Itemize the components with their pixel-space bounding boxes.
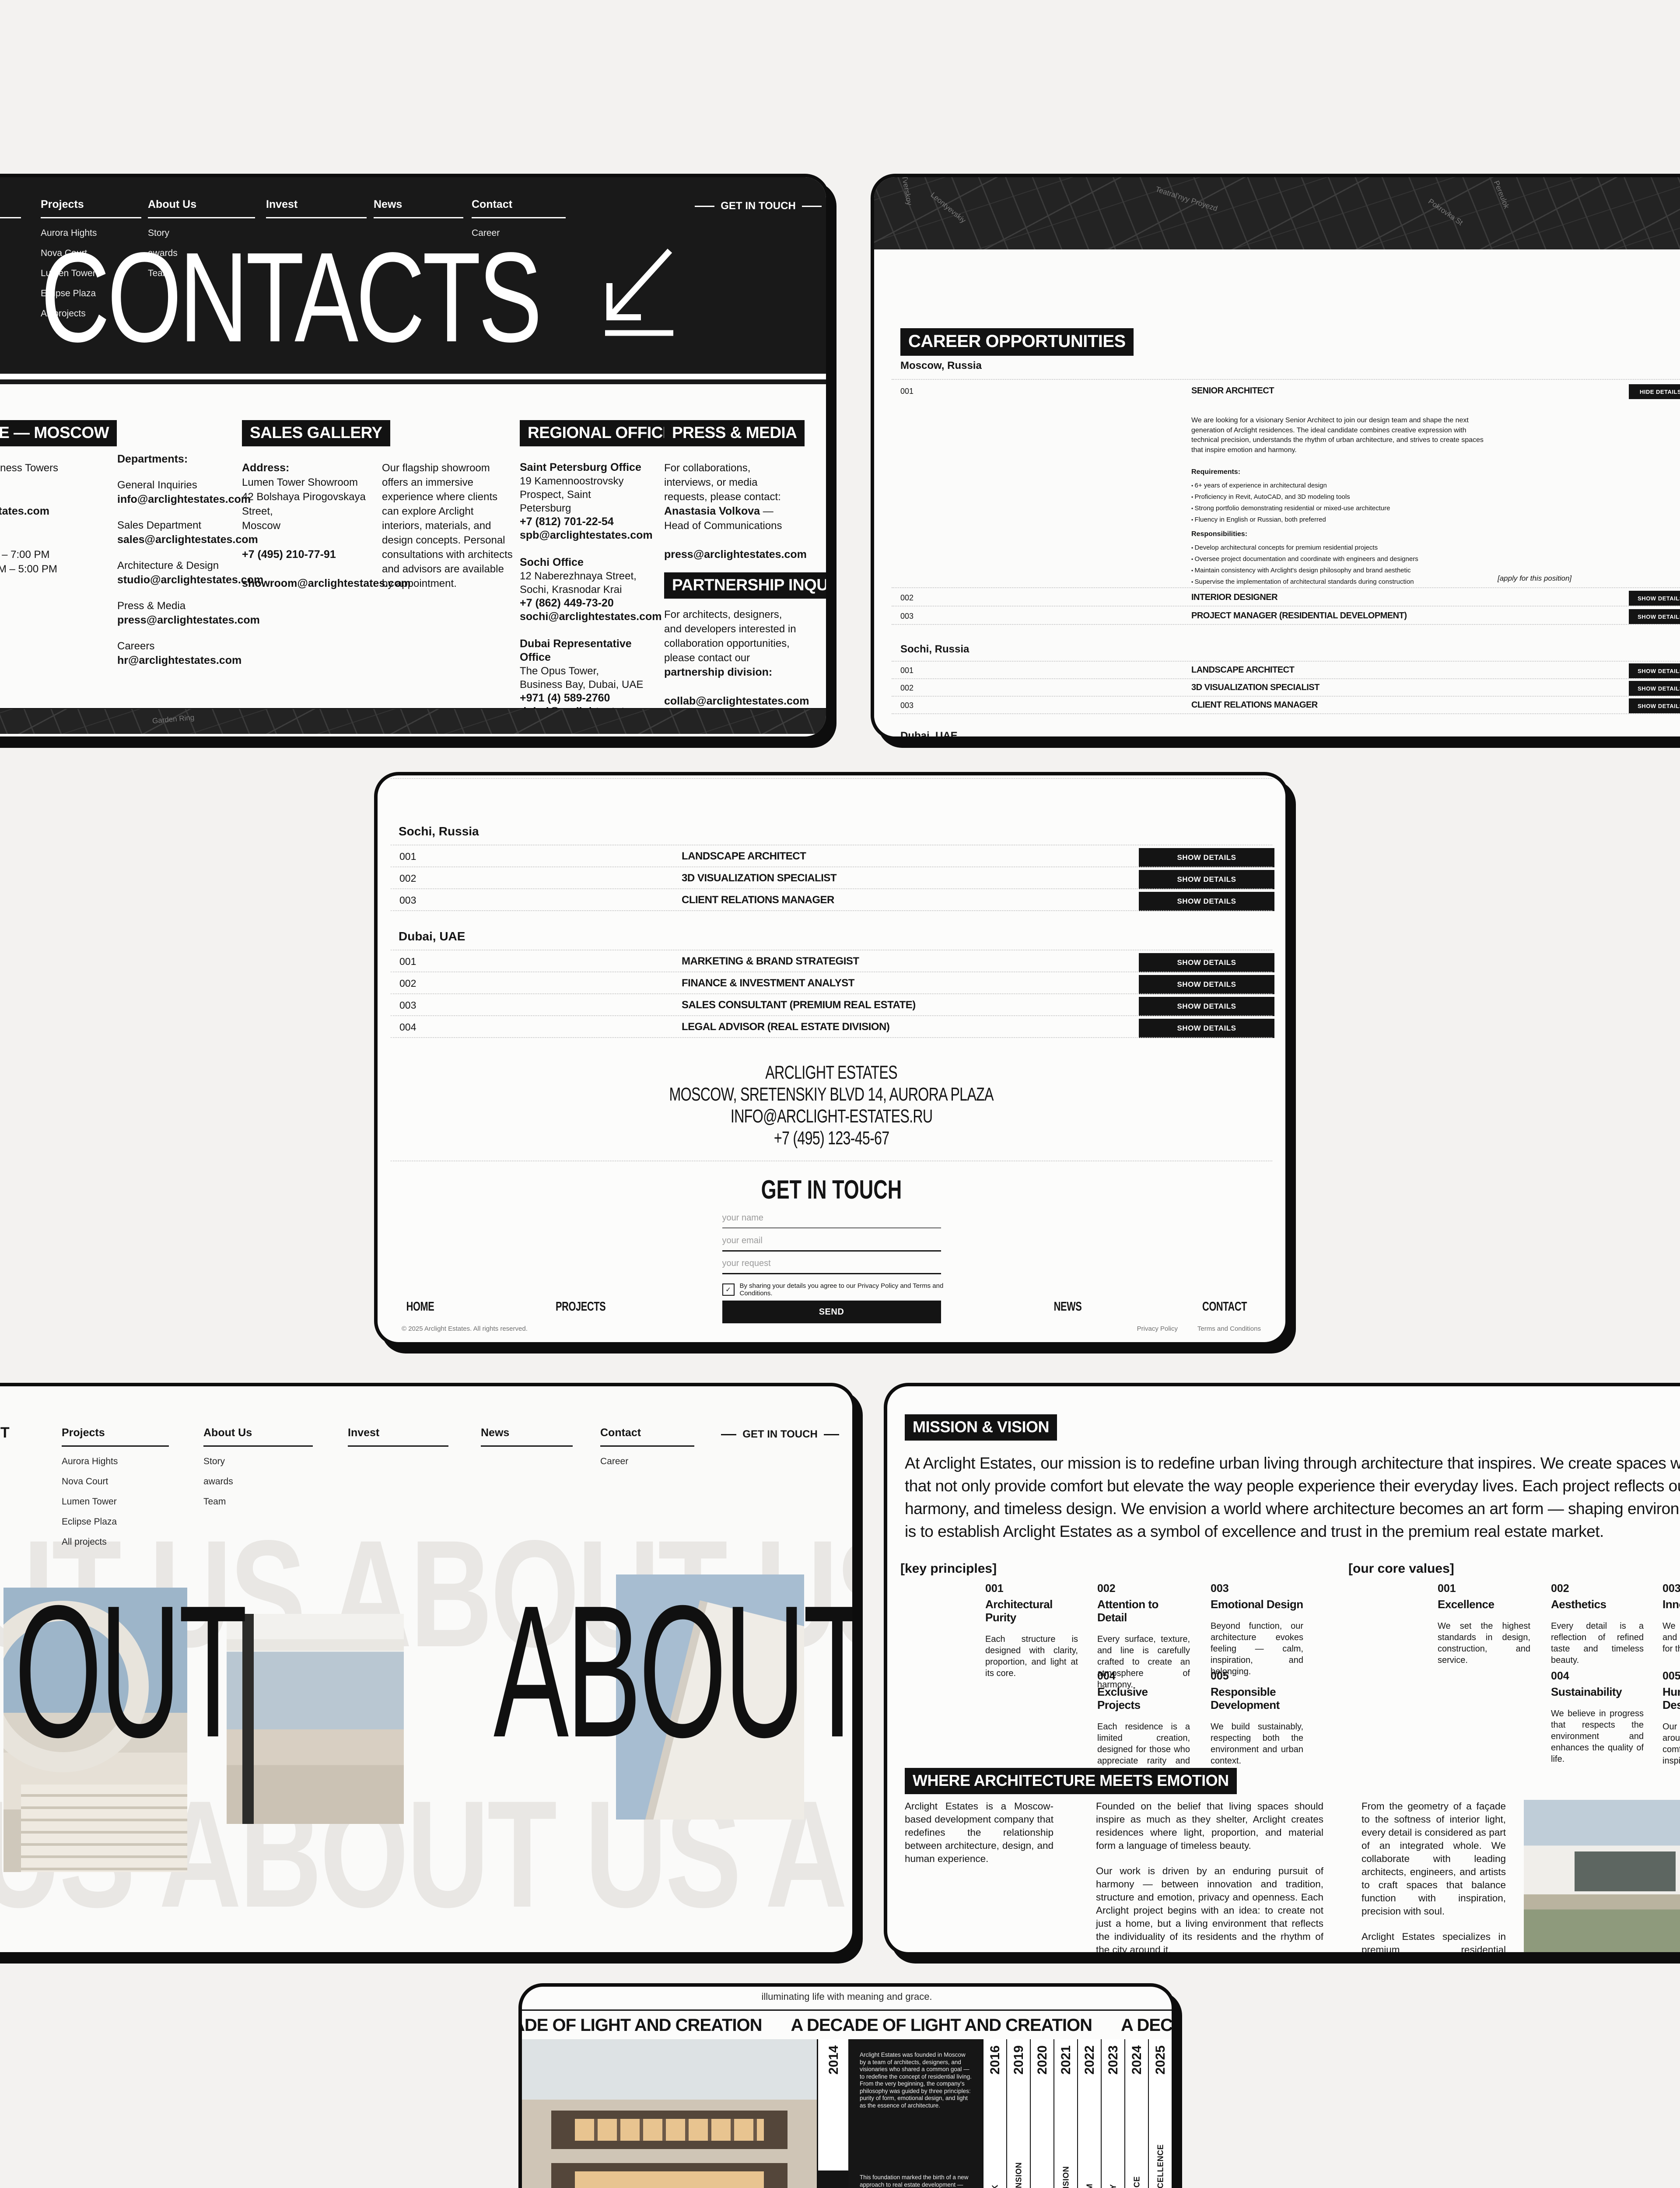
nav-item-projects[interactable]: Projects Aurora Hights Nova Court Lumen … [62, 1427, 169, 1547]
job-row: 003 PROJECT MANAGER (RESIDENTIAL DEVELOP… [874, 611, 1680, 624]
principle-item: 005Responsible Development We build sust… [1211, 1670, 1303, 1767]
arrow-down-left-icon [596, 247, 679, 339]
frame-about: ABOUT US ABOUT US ABOUT US ABOUT US ABOU… [0, 1383, 856, 1956]
show-details-button[interactable]: SHOW DETAILS [1629, 609, 1680, 624]
show-details-button[interactable]: SHOW DETAILS [1139, 870, 1274, 889]
value-item: 004Sustainability We believe in progress… [1551, 1670, 1644, 1765]
email-link[interactable]: hr@arclightestates.com [117, 654, 241, 666]
footer-link[interactable]: INVEST [901, 1300, 934, 1314]
frame-contact-form: Sochi, Russia 001 LANDSCAPE ARCHITECT SH… [374, 772, 1289, 1346]
job-row: 002 INTERIOR DESIGNER SHOW DETAILS [874, 593, 1680, 606]
email-input[interactable] [722, 1236, 941, 1250]
timeline-year-column: 2019 GROWTH & EXPANSION ↗ [1006, 2039, 1031, 2188]
apply-link[interactable]: [apply for this position] [1498, 574, 1571, 583]
nav-item-invest[interactable]: Invest [266, 198, 367, 218]
decade-tagline: illuminating life with meaning and grace… [522, 1991, 1172, 2002]
email-field[interactable] [722, 1236, 941, 1252]
show-details-button[interactable]: SHOW DETAILS [1139, 1019, 1274, 1038]
timeline-year-column: 2023 DESIGN SYNERGY ↗ [1101, 2039, 1125, 2188]
email-link[interactable]: press@arclightestates.com [664, 548, 807, 561]
show-details-button[interactable]: SHOW DETAILS [1139, 997, 1274, 1016]
nav-subitem[interactable]: Team [203, 1497, 313, 1507]
timeline-foundation-text: Arclight Estates was founded in Moscow b… [848, 2039, 983, 2188]
city-label: Sochi, Russia [900, 643, 969, 656]
email-link[interactable]: spb@arclightestates.com [520, 529, 653, 541]
job-row: 001 LANDSCAPE ARCHITECT SHOW DETAILS [874, 665, 1680, 678]
job-row: 001 SENIOR ARCHITECT HIDE DETAILS [874, 386, 1680, 399]
job-row: 002 3D VISUALIZATION SPECIALIST SHOW DET… [378, 871, 1285, 888]
footer-link[interactable]: PROJECTS [556, 1300, 605, 1314]
phone-link[interactable]: +7 (495) 210-77-91 [242, 548, 336, 561]
frame-careers: Leontyevskiy Tverskoy Teatral'nyy Proyez… [871, 174, 1680, 740]
frame-contacts: . Projects Aurora Hights Nova Court Lume… [0, 174, 829, 740]
page-title-chip: CAREER OPPORTUNITIES [900, 328, 1134, 356]
email-link[interactable]: sales@arclightestates.com [117, 533, 258, 546]
job-row: 001 LANDSCAPE ARCHITECT SHOW DETAILS [378, 849, 1285, 866]
nav-item-contact[interactable]: Contact Career [600, 1427, 694, 1467]
emotion-photo [1524, 1800, 1680, 1952]
value-item: 002Aesthetics Every detail is a reflecti… [1551, 1582, 1644, 1666]
timeline-foundation-strip: 2014 FOUNDATION ↙ [817, 2039, 850, 2188]
frame-mission: MISSION & VISION At Arclight Estates, ou… [884, 1383, 1680, 1956]
emotion-col: Founded on the belief that living spaces… [1096, 1800, 1323, 1956]
careers-content: CAREER OPPORTUNITIES Moscow, Russia 001 … [874, 249, 1680, 736]
show-details-button[interactable]: SHOW DETAILS [1139, 848, 1274, 867]
contacts-hero: . Projects Aurora Hights Nova Court Lume… [0, 177, 826, 384]
terms-link[interactable]: Terms and Conditions [1197, 1325, 1261, 1332]
nav-subitem[interactable]: Story [203, 1456, 313, 1467]
job-requirements: Requirements: 6+ years of experience in … [1191, 467, 1484, 526]
sales-gallery-address: Address: Lumen Tower Showroom 42 Bolshay… [242, 461, 373, 591]
city-label: Dubai, UAE [399, 929, 465, 943]
email-link[interactable]: sochi@arclightestates.com [520, 610, 662, 623]
head-office-details: Aurora Plaza Business Towers Sretenskiy … [0, 461, 104, 576]
divider [522, 2009, 1172, 2011]
about-word-out: OUT [14, 1591, 399, 1753]
careers-map[interactable]: Leontyevskiy Tverskoy Teatral'nyy Proyez… [874, 177, 1680, 249]
nav-subitem[interactable]: Eclipse Plaza [62, 1517, 169, 1527]
job-row: 002 FINANCE & INVESTMENT ANALYST SHOW DE… [378, 976, 1285, 993]
section-chip-sales-gallery: SALES GALLERY [242, 420, 390, 446]
city-label: Sochi, Russia [399, 824, 479, 838]
logo[interactable]: ARCLIGHTESTATES [0, 1425, 9, 1456]
nav-item-news[interactable]: News [374, 198, 463, 218]
company-name: ARCLIGHT ESTATES [378, 1062, 1285, 1083]
mission-paragraph: At Arclight Estates, our mission is to r… [905, 1452, 1680, 1543]
footer-link[interactable]: HOME [406, 1300, 434, 1314]
value-item: 005Human-Centered Design Our spaces are … [1662, 1670, 1680, 1767]
email-link[interactable]: press@arclightestates.com [117, 614, 260, 626]
get-in-touch-button[interactable]: GET IN TOUCH [721, 1428, 839, 1441]
job-row: 003 SALES CONSULTANT (PREMIUM REAL ESTAT… [378, 998, 1285, 1015]
hide-details-button[interactable]: HIDE DETAILS [1629, 384, 1680, 399]
nav-item-about[interactable]: About Us Story awards Team [203, 1427, 313, 1507]
phone-link[interactable]: +7 (812) 701-22-54 [520, 515, 614, 528]
departments-column: Departments: General Inquiries info@arcl… [117, 452, 240, 668]
timeline-year-column: 2025 A DECADE OF EXCELLENCE ↗ [1148, 2039, 1172, 2188]
name-field[interactable] [722, 1213, 941, 1228]
job-description: We are looking for a visionary Senior Ar… [1191, 416, 1484, 455]
nav-subitem[interactable]: All projects [62, 1537, 169, 1547]
email-link[interactable]: collab@arclightestates.com [664, 695, 809, 707]
get-in-touch-button[interactable]: GET IN TOUCH [695, 200, 822, 212]
name-input[interactable] [722, 1213, 941, 1227]
address-line: MOSCOW, SRETENSKIY BLVD 14, AURORA PLAZA [378, 1084, 1285, 1105]
partnership-column: For architects, designers, and developer… [664, 607, 800, 708]
phone-link[interactable]: +971 (4) 589-2760 [520, 692, 610, 704]
principle-item: 001Architectural Purity Each structure i… [985, 1582, 1078, 1679]
timeline-year-column: 2022 GLOBAL ACCLAIM ↗ [1077, 2039, 1102, 2188]
regional-offices-column: Saint Petersburg Office 19 Kamennoostrov… [520, 461, 644, 719]
show-details-button[interactable]: SHOW DETAILS [1139, 892, 1274, 911]
nav-subitem[interactable]: awards [203, 1476, 313, 1487]
footer-link[interactable]: ABOUT US [731, 1300, 779, 1314]
email-link[interactable]: info@arclightestates.com [117, 493, 251, 505]
about-word-about: ABOUT [493, 1591, 856, 1753]
decade-marquee: A DECADE OF LIGHT AND CREATIONA DECADE O… [518, 2016, 1175, 2035]
timeline-year-column: 2020 RECOGNITION ↗ [1030, 2039, 1054, 2188]
section-chip-press-media: PRESS & MEDIA [664, 420, 805, 446]
nav-item-invest[interactable]: Invest [348, 1427, 448, 1447]
privacy-policy-link[interactable]: Privacy Policy [1137, 1325, 1178, 1332]
value-item: 003Innovation We use technologies and cr… [1662, 1582, 1680, 1655]
consent-checkbox[interactable]: ✓ [722, 1283, 735, 1296]
nav-item-news[interactable]: News [481, 1427, 573, 1447]
principle-item: 003Emotional Design Beyond function, our… [1211, 1582, 1303, 1677]
city-label: Moscow, Russia [900, 360, 982, 372]
job-row: 002 3D VISUALIZATION SPECIALIST SHOW DET… [874, 683, 1680, 696]
timeline-photo [522, 2039, 817, 2188]
emotion-col: Arclight Estates is a Moscow-based devel… [905, 1800, 1053, 1865]
email-link[interactable]: info@arclightestates.com [0, 505, 49, 517]
show-details-button[interactable]: SHOW DETAILS [1629, 663, 1680, 678]
show-details-button[interactable]: SHOW DETAILS [1629, 698, 1680, 713]
timeline: 2014 FOUNDATION ↙ Arclight Estates was f… [522, 2039, 1172, 2188]
principle-item: 004Exclusive Projects Each residence is … [1097, 1670, 1190, 1778]
show-details-button[interactable]: SHOW DETAILS [1629, 591, 1680, 606]
section-chip-head-office: HEAD OFFICE — MOSCOW [0, 420, 117, 446]
job-row: 004 LEGAL ADVISOR (REAL ESTATE DIVISION)… [378, 1020, 1285, 1037]
section-chip-mission: MISSION & VISION [905, 1414, 1057, 1441]
copyright: © 2025 Arclight Estates. All rights rese… [402, 1325, 528, 1332]
footer-link[interactable]: NEWS [1053, 1300, 1081, 1314]
press-media-column: For collaborations, interviews, or media… [664, 461, 800, 562]
nav-logo[interactable]: . [0, 198, 21, 218]
phone-link[interactable]: +7 (862) 449-73-20 [520, 597, 614, 609]
email-link[interactable]: INFO@ARCLIGHT-ESTATES.RU [378, 1106, 1285, 1127]
sales-gallery-description: Our flagship showroom offers an immersiv… [382, 461, 513, 591]
nav-subitem[interactable]: Aurora Hights [62, 1456, 169, 1467]
timeline-year-column: 2021 EXPANSION OF VISION ↗ [1053, 2039, 1078, 2188]
values-label: [our core values] [1348, 1561, 1454, 1576]
section-chip-partnership: PARTNERSHIP INQUIRIES [664, 572, 829, 599]
job-responsibilities: Responsibilities: Develop architectural … [1191, 529, 1484, 588]
consent-row: ✓ By sharing your details you agree to o… [722, 1282, 950, 1297]
frame-decade: illuminating life with meaning and grace… [518, 1983, 1175, 2188]
job-row: 003 CLIENT RELATIONS MANAGER SHOW DETAIL… [378, 893, 1285, 910]
section-chip-emotion: WHERE ARCHITECTURE MEETS EMOTION [905, 1768, 1237, 1794]
request-input[interactable] [722, 1259, 941, 1273]
show-details-button[interactable]: SHOW DETAILS [1629, 681, 1680, 696]
nav-subitem[interactable]: Career [600, 1456, 694, 1467]
city-label: Dubai, UAE [900, 730, 958, 740]
show-details-button[interactable]: SHOW DETAILS [1139, 953, 1274, 972]
divider [0, 374, 826, 379]
contacts-content: HEAD OFFICE — MOSCOW Aurora Plaza Busine… [0, 384, 826, 708]
nav-subitem[interactable]: Lumen Tower [62, 1497, 169, 1507]
principles-label: [key principles] [900, 1561, 997, 1576]
show-details-button[interactable]: SHOW DETAILS [1139, 975, 1274, 994]
timeline-year-column: 2024 GLOBAL PRESENCE ↗ [1124, 2039, 1149, 2188]
emotion-col: From the geometry of a façade to the sof… [1361, 1800, 1506, 1956]
footer-link[interactable]: CONTACT [1202, 1300, 1247, 1314]
timeline-year-column: 2016 FIRST LANDMARK ↗ [983, 2039, 1007, 2188]
phone-link[interactable]: +7 (495) 123-45-67 [378, 1128, 1285, 1149]
consent-text: By sharing your details you agree to our… [740, 1282, 950, 1297]
request-field[interactable] [722, 1259, 941, 1274]
value-item: 001Excellence We set the highest standar… [1438, 1582, 1530, 1666]
get-in-touch-title: GET IN TOUCH [378, 1175, 1285, 1205]
job-row: 003 CLIENT RELATIONS MANAGER SHOW DETAIL… [874, 700, 1680, 713]
contacts-map[interactable]: Garden Ring [0, 708, 826, 734]
nav-subitem[interactable]: Nova Court [62, 1476, 169, 1487]
frame3-footer: HOME PROJECTS ABOUT US INVEST NEWS CONTA… [378, 1300, 1278, 1337]
footer-nav: HOME PROJECTS ABOUT US INVEST NEWS CONTA… [402, 1300, 1254, 1314]
job-row: 001 MARKETING & BRAND STRATEGIST SHOW DE… [378, 954, 1285, 971]
